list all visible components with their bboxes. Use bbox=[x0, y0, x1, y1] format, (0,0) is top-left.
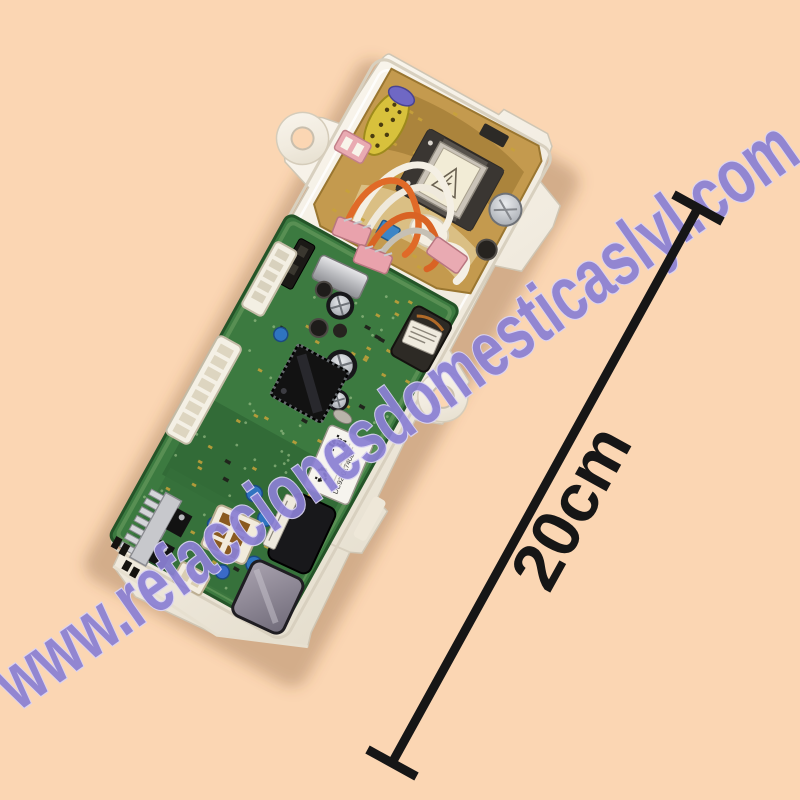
product-photo: DC92-01740B bbox=[0, 0, 800, 800]
photo-canvas: DC92-01740B bbox=[0, 0, 800, 800]
